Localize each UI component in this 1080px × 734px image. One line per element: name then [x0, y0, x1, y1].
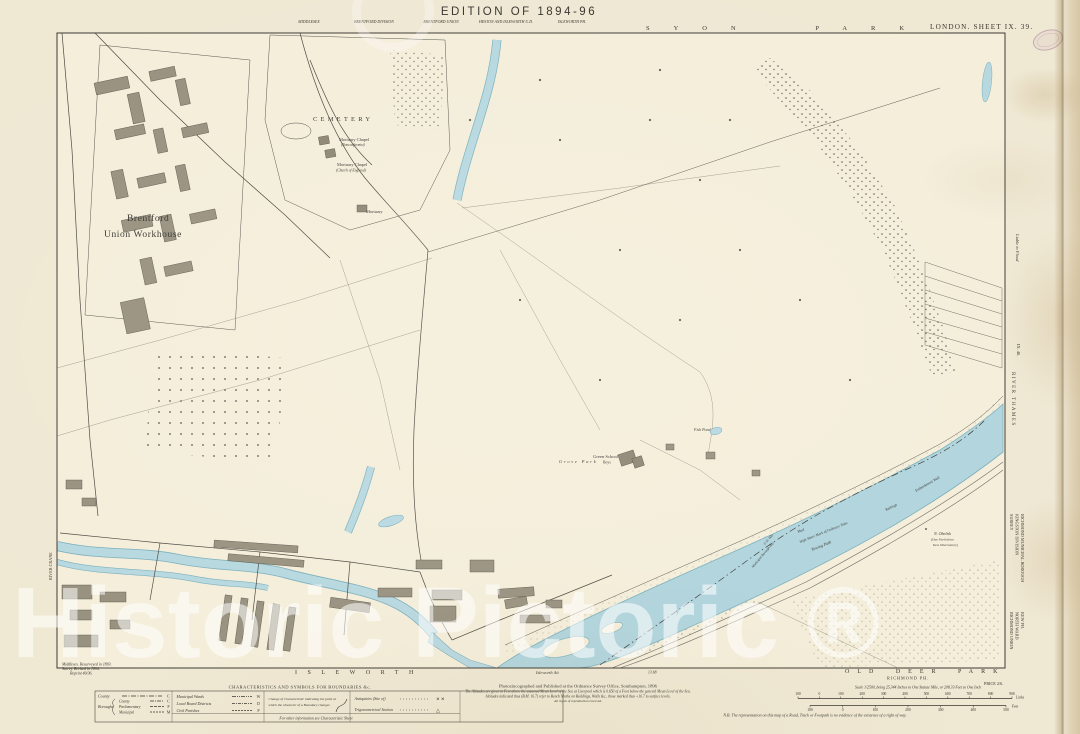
label-obelisk-1: N. Obelisk	[933, 531, 951, 536]
label-workhouse-2: Union Workhouse	[104, 230, 182, 240]
publication-4: All rights of reproduction reserved.	[553, 699, 602, 703]
syon-park-label: SYON PARK	[646, 25, 928, 32]
edition-title: EDITION OF 1894-96	[441, 6, 597, 18]
imprint: Photozincographed and Published at the O…	[465, 684, 691, 704]
edition-notes: Middlesex. Resurveyed in 1893. Surrey. R…	[61, 663, 112, 676]
legend-local-board: Local Board Districts	[176, 701, 212, 706]
edition-note-3: Reprint 40/36.	[69, 672, 93, 676]
legend-borough-type-2: Parliamentary	[118, 705, 141, 709]
label-grove-park: Grove Park	[559, 459, 597, 464]
legend-civil-parishes: Civil Parishes	[177, 708, 200, 713]
cemetery-trees	[390, 50, 445, 130]
richmond-ph-label: RICHMOND PH.	[887, 676, 929, 681]
obelisk-mark	[925, 528, 927, 530]
admin-union: BRENTFORD UNION	[423, 20, 459, 24]
feet-tick-label: 100	[873, 708, 879, 712]
legend-trig-station: Trigonometrical Station	[355, 707, 393, 712]
change-boundary-symbol	[336, 699, 347, 712]
legend-letter-m: M	[167, 710, 171, 715]
links-tick-label: 300	[881, 692, 887, 696]
os-map-sheet: CEMETERY Mortuary Chapel (Nonconformist)…	[0, 0, 1080, 734]
isleworth-ait-label: Isleworth Ait	[535, 670, 560, 675]
links-tick-label: 600	[945, 692, 951, 696]
links-tick-label: 400	[902, 692, 908, 696]
legend-letter-p2: P	[257, 708, 260, 713]
margin-ward: NORTH WARD	[1015, 612, 1020, 639]
margin-union: RICHMOND UNION	[1009, 612, 1014, 649]
feet-tick-label: 100	[807, 708, 813, 712]
antiquities-mark: ✕ ✕	[436, 697, 445, 702]
legend-county: County	[98, 694, 110, 699]
borough-boundary-samples	[150, 701, 164, 712]
admin-ud: HESTON AND ISLEWORTH U.D.	[478, 20, 533, 24]
legend-title: CHARACTERISTICS AND SYMBOLS FOR BOUNDARI…	[229, 685, 372, 690]
links-tick-label: 200	[860, 692, 866, 696]
legend-boroughs: Boroughs	[98, 704, 114, 709]
feet-tick-label: 500	[1003, 708, 1009, 712]
label-fish-pond: Fish Pond	[693, 427, 712, 432]
margin-borough: RICHMOND MUNICIPAL BOROUGH	[1020, 514, 1025, 582]
publication-2: The Altitudes are given in Feet above th…	[465, 690, 691, 694]
feet-tick-label: 200	[905, 708, 911, 712]
river-crane-label: RIVER CRANE	[48, 552, 53, 580]
legend-borough-type-3: Municipal	[118, 711, 134, 715]
chainage-number: 13.68	[648, 671, 657, 675]
links-tick-label: 100	[795, 692, 801, 696]
legend-change-1: Change of Characteristic indicating the …	[269, 697, 337, 701]
feet-tick-label: 400	[971, 708, 977, 712]
margin-parish: KEW PH.	[1020, 612, 1025, 629]
edition-note-2: Surrey. Revised in 1894.	[62, 667, 100, 671]
price-label: PRICE 2/6.	[984, 681, 1003, 686]
links-tick-label: 0	[819, 692, 821, 696]
label-obelisk-3: Kew Observatory)	[932, 543, 959, 547]
legend-antiquities: Antiquities (Site of)	[354, 696, 387, 701]
sheet-label: LONDON. SHEET IX. 39.	[930, 23, 1033, 31]
feet-tick-label: 300	[938, 708, 944, 712]
liable-to-flood: Liable to Flood	[1015, 233, 1020, 262]
links-tick-label: 500	[924, 692, 930, 696]
links-tick-label: 800	[988, 692, 994, 696]
trig-mark: △	[436, 708, 440, 714]
links-tick-label: 100	[838, 692, 844, 696]
admin-middlesex: MIDDLESEX	[297, 20, 320, 24]
edition-note-1: Middlesex. Resurveyed in 1893.	[61, 663, 112, 667]
links-unit: Links	[1016, 696, 1025, 700]
scale-title: Scale 1/2500, being 25.344 Inches to One…	[855, 686, 981, 691]
label-mortuary: Mortuary	[366, 209, 383, 214]
scale-bars: Scale 1/2500, being 25.344 Inches to One…	[722, 686, 1024, 719]
legend-change-2: which the character of a Boundary change…	[269, 703, 331, 707]
label-mortuary-chapel-a-sub: (Nonconformist)	[341, 143, 366, 147]
legend-wards: Municipal Wards	[176, 694, 205, 699]
district-boundary-samples	[232, 697, 252, 711]
isleworth-spread: ISLEWORTH	[295, 670, 424, 676]
label-cemetery: CEMETERY	[313, 116, 373, 123]
adjacent-sheet: IX. 40.	[1016, 344, 1021, 356]
legend-borough-type-1: County	[119, 700, 130, 704]
legend-letter-c2: C	[167, 699, 170, 704]
links-tick-label: 700	[967, 692, 973, 696]
legend-letter-w: W	[257, 694, 261, 699]
feet-tick-label: 0	[842, 708, 844, 712]
old-deer-park-spread: OLD DEER PARK	[845, 669, 1005, 675]
label-obelisk-2: (Due North from	[931, 538, 954, 542]
label-workhouse-1: Brentford	[127, 213, 169, 224]
admin-parish: ISLEWORTH PH.	[557, 20, 586, 24]
legend-letter-p: P	[167, 704, 170, 709]
legend-footer: For other information see Characteristic…	[278, 717, 353, 721]
legend-letter-d: D	[257, 701, 260, 706]
label-mortuary-chapel-b-sub: (Church of England)	[336, 169, 367, 173]
feet-unit: Feet	[1012, 705, 1018, 709]
label-mortuary-chapel-b: Mortuary Chapel	[337, 162, 368, 167]
river-thames-label: RIVER THAMES	[1010, 372, 1015, 427]
links-tick-label: 900	[1009, 692, 1015, 696]
nb-note: N.B. The representation on this map of a…	[722, 713, 906, 719]
map-svg: CEMETERY Mortuary Chapel (Nonconformist)…	[0, 0, 1080, 734]
admin-division: BRENTFORD DIVISION	[354, 20, 394, 24]
margin-division: KINGSTON DIVISION	[1015, 514, 1020, 555]
borough-brace	[113, 699, 115, 715]
library-stamp-icon	[1031, 26, 1065, 53]
label-green-school-sub: Boys	[603, 461, 611, 465]
label-mortuary-chapel-a: Mortuary Chapel	[339, 137, 370, 142]
margin-county: SURREY	[1009, 514, 1014, 531]
